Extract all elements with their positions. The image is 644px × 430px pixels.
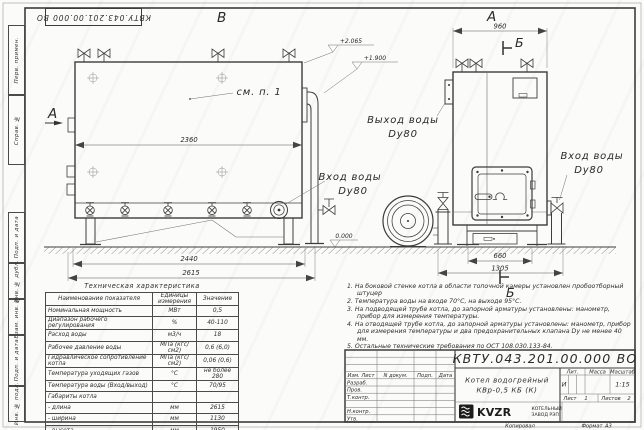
outlet-size: Dy80: [388, 129, 418, 140]
section-b-top-label: Б: [515, 35, 524, 50]
note-5: 5. Остальные технические требования по О…: [347, 343, 633, 350]
tb-scale-value: 1:15: [615, 381, 630, 389]
dim-1305: 1305: [491, 265, 508, 273]
valve-icon: [456, 59, 468, 72]
tech-col-value: Значение: [197, 293, 239, 306]
tech-table-title: Техническая характеристика: [45, 282, 239, 290]
drain-valve-icon: [86, 203, 95, 216]
tech-cell: %: [153, 317, 197, 330]
org-name-line1: КОТЕЛЬНЫЙ: [532, 405, 562, 412]
side-inlet-label: Вход воды: [560, 151, 623, 162]
tech-col-units: Единицы измерения: [153, 293, 197, 306]
tb-row-prov: Пров.: [347, 388, 362, 394]
tech-row: Гидравлическое сопротивление котлаМПа (к…: [46, 354, 239, 367]
valve-icon: [283, 49, 295, 62]
drawing-sheet: В А см. п. 1 2360 2440 2615 +2.065 +1.90…: [0, 0, 644, 430]
tb-row-nkontr: Н.контр.: [347, 409, 370, 415]
drawing-title-line1: Котел водогрейный: [465, 377, 549, 385]
tb-lit-label: Лит.: [566, 370, 579, 376]
tech-cell: [153, 392, 197, 403]
tech-cell: Температура уходящих газов: [46, 367, 153, 380]
tech-row: Габариты котла: [46, 392, 239, 403]
note-1: 1. На боковой стенке котла в области топ…: [347, 283, 633, 298]
frame-strip-podp-data-2: Подп. и дата: [8, 335, 25, 386]
front-view-dimensions: [45, 45, 398, 281]
tech-col-name: Наименование показателя: [46, 293, 153, 306]
drain-valve-icon: [243, 203, 252, 216]
front-inlet-label: Вход воды: [318, 172, 381, 183]
copied-label: Копировал: [505, 424, 535, 430]
tech-row: - ширинамм1130: [46, 414, 239, 425]
tech-cell: 18: [197, 330, 239, 341]
valve-icon: [98, 49, 110, 62]
outlet-label: Выход воды: [367, 115, 439, 126]
tb-lit-value: И: [562, 381, 567, 389]
kvzr-logo-icon: [459, 405, 474, 419]
tech-cell: МПа (кгс/см2): [153, 354, 197, 367]
tech-cell: мм: [153, 403, 197, 414]
drawing-title-line2: КВр-0,5 КБ (К): [477, 387, 538, 395]
frame-strip-sprav: Справ. №: [8, 95, 25, 165]
tech-cell: мм: [153, 425, 197, 430]
tb-col-podp: Подп.: [417, 373, 433, 379]
strip-label: Взам. инв. №: [14, 296, 20, 338]
tech-cell: 2615: [197, 403, 239, 414]
format-value: А3: [604, 424, 612, 430]
tech-cell: °С: [153, 381, 197, 392]
dim-960: 960: [494, 23, 507, 31]
fan-duct-valve: [434, 193, 452, 245]
tech-table: Наименование показателя Единицы измерени…: [45, 292, 239, 430]
stamp-number-text: КВТУ.043.201.00.000 ВО: [36, 13, 151, 22]
tech-header-row: Наименование показателя Единицы измерени…: [46, 293, 239, 306]
dim-660: 660: [494, 252, 507, 260]
blower-fan: [383, 196, 438, 247]
lifting-lug-icon: [87, 72, 99, 84]
outlet-pipe-elbow: [302, 88, 324, 244]
tech-cell: 40-110: [197, 317, 239, 330]
strip-label: Справ. №: [14, 115, 20, 145]
drawing-number: КВТУ.043.201.00.000 ВО: [453, 351, 638, 366]
side-view-boiler: [383, 59, 567, 247]
org-name-line2: ЗАВОД РЭП: [532, 412, 559, 418]
tech-cell: 1950: [197, 425, 239, 430]
strip-label: Подп. и дата: [14, 216, 20, 258]
side-inlet-size: Dy80: [574, 165, 604, 176]
front-view-boiler: [67, 49, 335, 245]
dim-2615: 2615: [182, 269, 199, 277]
drain-valve-icon: [121, 203, 130, 216]
section-a-label: А: [47, 106, 58, 122]
tech-cell: [197, 392, 239, 403]
frame-strip-vzam-inv: Взам. инв. №: [8, 299, 25, 335]
ground-hatching: [44, 247, 616, 254]
tech-row: - высотамм1950: [46, 425, 239, 430]
tech-cell: МПа (кгс/см2): [153, 341, 197, 354]
tb-mass-label: Масса: [589, 370, 606, 376]
technical-notes: 1. На боковой стенке котла в области топ…: [347, 283, 633, 351]
dim-2360: 2360: [180, 136, 197, 144]
ash-pit: [457, 225, 547, 246]
valve-icon: [470, 59, 482, 72]
sampling-faucet: [318, 199, 335, 215]
tech-row: Расход водым3/ч18: [46, 330, 239, 341]
kvzr-logo-text: KVZR: [477, 406, 512, 419]
drain-valve-icon: [208, 203, 217, 216]
tech-row: Рабочее давление водыМПа (кгс/см2)0,6 (6…: [46, 341, 239, 354]
valve-icon: [521, 59, 533, 72]
tech-row: Температура уходящих газов°Сне более 280: [46, 367, 239, 380]
note-3: 3. На подводящей трубе котла, до запорно…: [347, 306, 633, 321]
water-inlet-valve: [547, 198, 566, 245]
see-note-callout: см. п. 1: [236, 87, 281, 98]
lifting-lug-icon: [216, 72, 228, 84]
elevation-zero: 0.000: [335, 233, 352, 240]
control-panel-box: [513, 78, 537, 98]
frame-strip-perv-primen: Перв. примен.: [8, 25, 25, 95]
frame-strip-inv-podl: Инв. № подл.: [8, 386, 25, 422]
tech-cell: Диапазон рабочего регулирования: [46, 317, 153, 330]
front-view-label: В: [217, 10, 227, 26]
format-label: Формат: [581, 424, 603, 430]
tech-cell: Гидравлическое сопротивление котла: [46, 354, 153, 367]
strip-label: Подп. и дата: [14, 339, 20, 381]
tech-cell: 1130: [197, 414, 239, 425]
tech-row: Диапазон рабочего регулирования%40-110: [46, 317, 239, 330]
strip-label: Инв. № подл.: [14, 382, 20, 425]
lifting-lug-icon: [216, 166, 228, 178]
valve-icon: [212, 49, 224, 62]
strip-label: Перв. примен.: [14, 37, 20, 84]
note-4: 4. На отводящей трубе котла, до запорной…: [347, 321, 633, 343]
tech-cell: не более 280: [197, 367, 239, 380]
tb-scale-label: Масштаб: [610, 370, 635, 376]
tech-cell: Номинальная мощность: [46, 306, 153, 317]
tech-cell: - высота: [46, 425, 153, 430]
tech-characteristics: Техническая характеристика Наименование …: [45, 282, 239, 430]
frame-strip-inv-dubl: Инв. № дубл.: [8, 263, 25, 299]
tb-sheets-label: Листов: [600, 396, 620, 402]
tech-row: Температура воды (Вход/выход)°С70/95: [46, 381, 239, 392]
tb-sheet-value: 1: [584, 396, 587, 402]
tech-cell: Рабочее давление воды: [46, 341, 153, 354]
tech-cell: 0,06 (0,6): [197, 354, 239, 367]
tb-row-razrab: Разраб.: [347, 380, 367, 386]
note-2: 2. Температура воды на входе 70°С, на вы…: [347, 298, 633, 305]
tech-cell: 0,6 (6,0): [197, 341, 239, 354]
valve-icon: [78, 49, 90, 62]
tech-cell: мм: [153, 414, 197, 425]
tb-row-tkontr: Т.контр.: [347, 395, 369, 401]
tb-col-data: Дата: [438, 373, 452, 379]
water-outlet-flange: [445, 80, 453, 104]
tech-cell: 70/95: [197, 381, 239, 392]
drain-valve-icon: [164, 203, 173, 216]
tb-sheet-label: Лист: [562, 396, 577, 402]
tb-row-utv: Утв.: [347, 416, 358, 422]
water-inlet-flange: [271, 202, 288, 219]
tech-cell: - ширина: [46, 414, 153, 425]
dim-2440: 2440: [180, 255, 197, 263]
tech-cell: Расход воды: [46, 330, 153, 341]
lifting-lug-icon: [87, 166, 99, 178]
front-inlet-size: Dy80: [338, 186, 368, 197]
tech-cell: °С: [153, 367, 197, 380]
tech-row: - длинамм2615: [46, 403, 239, 414]
elevation-mid: +1.900: [364, 55, 386, 62]
tech-row: Номинальная мощностьМВт0,5: [46, 306, 239, 317]
frame-strip-podp-data-1: Подп. и дата: [8, 212, 25, 263]
tech-cell: 0,5: [197, 306, 239, 317]
tech-cell: Температура воды (Вход/выход): [46, 381, 153, 392]
tb-sheets-value: 2: [627, 396, 630, 402]
tb-col-izm: Изм. Лист: [348, 373, 376, 379]
tech-cell: МВт: [153, 306, 197, 317]
furnace-door: [472, 167, 535, 220]
tech-cell: Габариты котла: [46, 392, 153, 403]
elevation-top: +2.065: [340, 38, 362, 45]
stamp-number-box: КВТУ.043.201.00.000 ВО: [45, 8, 142, 26]
tech-cell: м3/ч: [153, 330, 197, 341]
tech-cell: - длина: [46, 403, 153, 414]
tb-col-doc: N докум.: [383, 373, 407, 379]
